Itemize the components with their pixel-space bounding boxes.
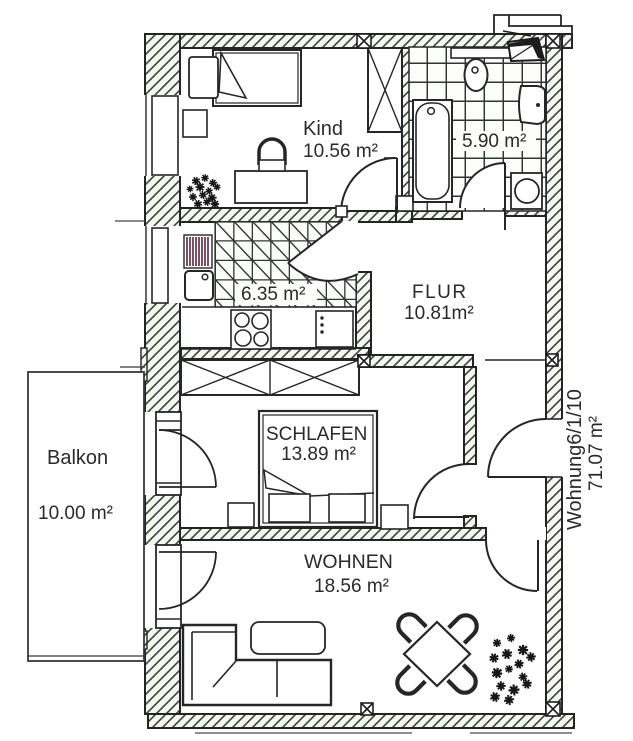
svg-text:FLUR: FLUR [412,282,468,303]
svg-text:18.56 m²: 18.56 m² [314,576,389,597]
svg-text:10.56 m²: 10.56 m² [303,141,378,162]
svg-text:13.89 m²: 13.89 m² [281,444,356,465]
svg-text:10.81m²: 10.81m² [404,303,474,324]
svg-text:SCHLAFEN: SCHLAFEN [266,424,367,445]
svg-text:Balkon: Balkon [47,447,108,469]
svg-text:Kind: Kind [303,118,343,140]
svg-text:71.07 m²: 71.07 m² [586,416,607,491]
svg-text:6.35 m²: 6.35 m² [241,284,305,305]
svg-text:Wohnung6/1/10: Wohnung6/1/10 [564,389,586,530]
svg-text:WOHNEN: WOHNEN [304,551,393,573]
svg-text:5.90 m²: 5.90 m² [462,131,526,152]
svg-text:10.00 m²: 10.00 m² [38,503,113,524]
